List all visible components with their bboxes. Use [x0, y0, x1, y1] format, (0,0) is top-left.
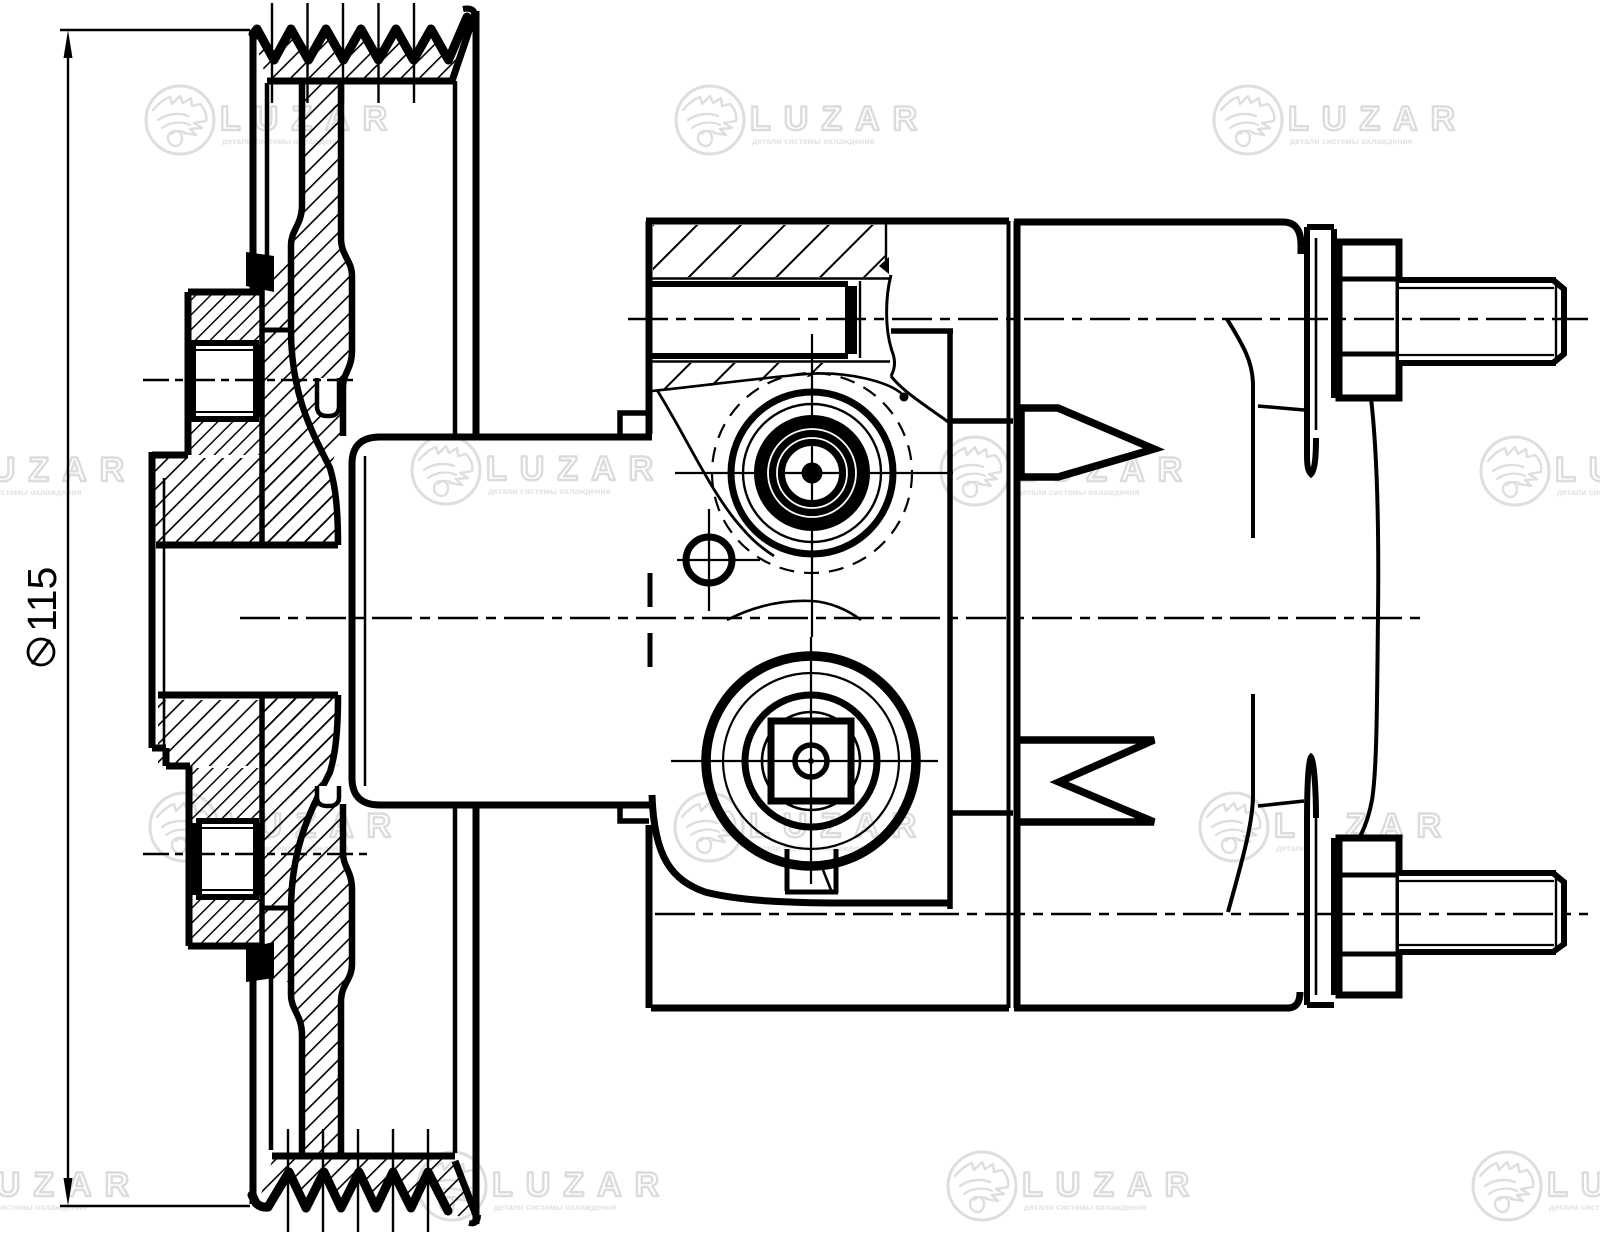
- svg-text:115: 115: [19, 567, 65, 632]
